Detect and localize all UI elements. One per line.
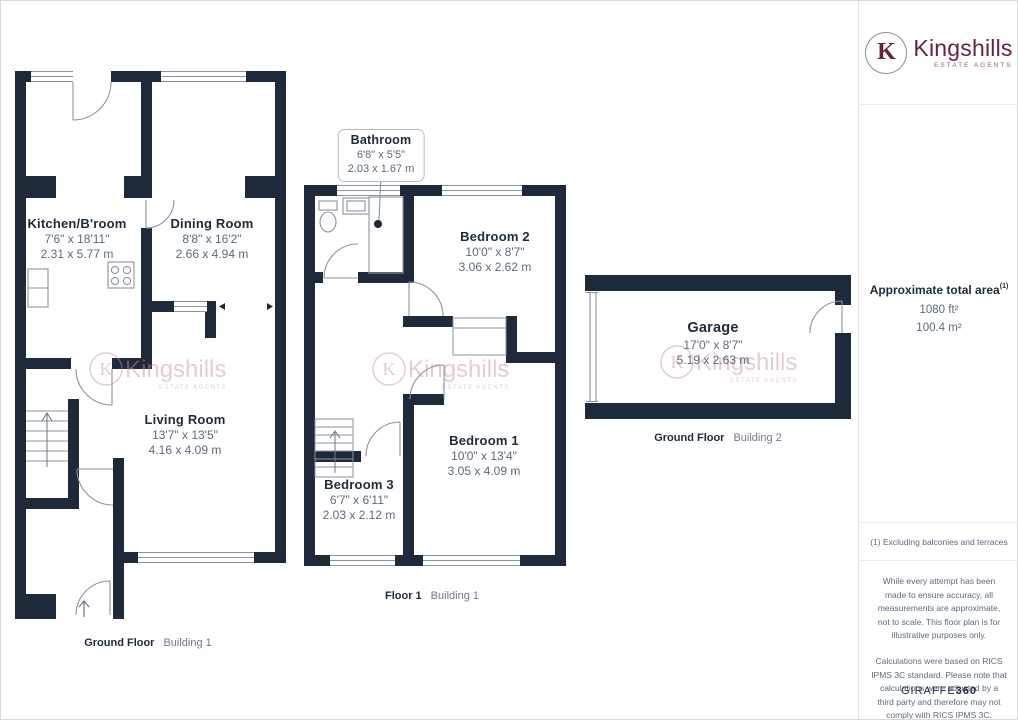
info-sidebar: K Kingshills ESTATE AGENTS Approximate t… — [858, 1, 1018, 719]
total-area-section: Approximate total area(1) 1080 ft² 100.4… — [859, 105, 1018, 523]
door-arc — [324, 244, 358, 278]
room-label-bedroom1: Bedroom 1 10'0" x 13'4" 3.05 x 4.09 m — [448, 433, 521, 479]
brand-tagline: ESTATE AGENTS — [934, 62, 1013, 69]
wardrobe — [453, 318, 506, 355]
stove-icon — [108, 262, 134, 288]
disclaimer-accuracy: While every attempt has been made to ens… — [859, 575, 1018, 643]
shower-icon — [369, 197, 403, 273]
room-dimensions-metric: 4.16 x 4.09 m — [145, 443, 226, 457]
provider-suffix: 360 — [956, 685, 977, 697]
brand-monogram: K — [877, 39, 896, 66]
room-name: Garage — [677, 320, 750, 337]
door-arc — [73, 82, 111, 120]
watermark-monogram: K — [100, 359, 113, 379]
door-arc — [409, 282, 443, 316]
door-arc — [76, 581, 110, 615]
watermark-tagline: ESTATE AGENTS — [159, 385, 227, 391]
disclaimer-section: While every attempt has been made to ens… — [859, 561, 1018, 719]
room-dimensions-imperial: 6'7" x 6'11" — [323, 493, 396, 507]
floor1-stairs — [315, 419, 353, 477]
watermark-name: Kingshills — [125, 356, 226, 383]
caption-floor1-building1: Floor 1Building 1 — [385, 590, 479, 602]
provider-logo: GIRAFFE360 — [859, 685, 1018, 697]
room-name: Living Room — [145, 412, 226, 427]
room-dimensions-imperial: 10'0" x 13'4" — [448, 449, 521, 463]
total-area-label: Approximate total area(1) — [859, 283, 1018, 297]
watermark-name: Kingshills — [408, 356, 509, 383]
room-dimensions-metric: 2.66 x 4.94 m — [170, 247, 253, 261]
floor-name: Ground Floor — [654, 432, 724, 444]
room-label-bedroom2: Bedroom 2 10'0" x 8'7" 3.06 x 2.62 m — [459, 229, 532, 275]
garage-door — [586, 293, 598, 402]
floor-name: Ground Floor — [84, 637, 154, 649]
brand-wordmark: Kingshills ESTATE AGENTS — [913, 37, 1012, 69]
sink-icon — [343, 198, 369, 214]
room-name: Bedroom 3 — [323, 477, 396, 492]
room-dimensions-imperial: 10'0" x 8'7" — [459, 245, 532, 259]
room-name: Bathroom — [348, 133, 415, 148]
footnote-section: (1) Excluding balconies and terraces — [859, 523, 1018, 561]
total-area-metric: 100.4 m² — [859, 322, 1018, 334]
door-arc — [77, 469, 113, 505]
floorplan-canvas: K Kingshills ESTATE AGENTS K Kingshills … — [1, 1, 858, 719]
floorplan-page: K Kingshills ESTATE AGENTS K Kingshills … — [0, 0, 1018, 720]
room-dimensions-metric: 3.05 x 4.09 m — [448, 464, 521, 478]
watermark-floor1: K Kingshills ESTATE AGENTS — [373, 353, 510, 391]
bathroom-callout: Bathroom 6'8" x 5'5" 2.03 x 1.67 m — [338, 129, 425, 182]
caption-ground-floor-building1: Ground FloorBuilding 1 — [84, 637, 212, 649]
room-label-living: Living Room 13'7" x 13'5" 4.16 x 4.09 m — [145, 412, 226, 458]
watermark-tagline: ESTATE AGENTS — [442, 385, 510, 391]
floor-name: Floor 1 — [385, 590, 422, 602]
room-dimensions-metric: 2.31 x 5.77 m — [27, 247, 126, 261]
room-dimensions-imperial: 17'0" x 8'7" — [677, 338, 750, 352]
room-dimensions-metric: 3.06 x 2.62 m — [459, 260, 532, 274]
room-name: Bedroom 1 — [448, 433, 521, 448]
provider-name: GIRAFFE — [901, 685, 956, 697]
brand-logo: K Kingshills ESTATE AGENTS — [859, 1, 1018, 105]
counter-icon — [28, 269, 48, 307]
room-dimensions-imperial: 8'8" x 16'2" — [170, 232, 253, 246]
door-arc — [366, 422, 400, 456]
room-label-kitchen: Kitchen/B'room 7'6" x 18'11" 2.31 x 5.77… — [27, 216, 126, 262]
room-label-garage: Garage 17'0" x 8'7" 5.19 x 2.63 m — [677, 320, 750, 367]
room-dimensions-metric: 2.03 x 1.67 m — [348, 163, 415, 176]
door-arc — [810, 301, 842, 333]
room-label-bedroom3: Bedroom 3 6'7" x 6'11" 2.03 x 2.12 m — [323, 477, 396, 523]
room-dimensions-metric: 2.03 x 2.12 m — [323, 508, 396, 522]
room-dimensions-imperial: 13'7" x 13'5" — [145, 428, 226, 442]
room-name: Kitchen/B'room — [27, 216, 126, 231]
footnote-text: (1) Excluding balconies and terraces — [870, 537, 1008, 547]
entry-arrow-icon — [79, 601, 89, 617]
watermark-monogram: K — [383, 359, 396, 379]
brand-monogram-icon: K — [865, 32, 907, 74]
room-name: Dining Room — [170, 216, 253, 231]
room-dimensions-imperial: 7'6" x 18'11" — [27, 232, 126, 246]
room-dimensions-imperial: 6'8" x 5'5" — [348, 149, 415, 162]
building-name: Building 1 — [431, 590, 479, 602]
room-name: Bedroom 2 — [459, 229, 532, 244]
toilet-icon — [319, 201, 337, 232]
building-name: Building 2 — [733, 432, 781, 444]
footnote-marker: (1) — [1000, 283, 1009, 290]
watermark-building1: K Kingshills ESTATE AGENTS — [90, 353, 227, 391]
total-area-imperial: 1080 ft² — [859, 304, 1018, 316]
building-name: Building 1 — [163, 637, 211, 649]
room-label-dining: Dining Room 8'8" x 16'2" 2.66 x 4.94 m — [170, 216, 253, 262]
building1-stairs — [26, 411, 68, 467]
watermark-tagline: ESTATE AGENTS — [730, 378, 798, 384]
building1-walls — [15, 71, 286, 619]
opening-markers — [219, 303, 273, 310]
caption-ground-floor-building2: Ground FloorBuilding 2 — [654, 432, 782, 444]
brand-name: Kingshills — [913, 37, 1012, 60]
total-area-label-text: Approximate total area — [870, 283, 1000, 297]
room-dimensions-metric: 5.19 x 2.63 m — [677, 353, 750, 367]
